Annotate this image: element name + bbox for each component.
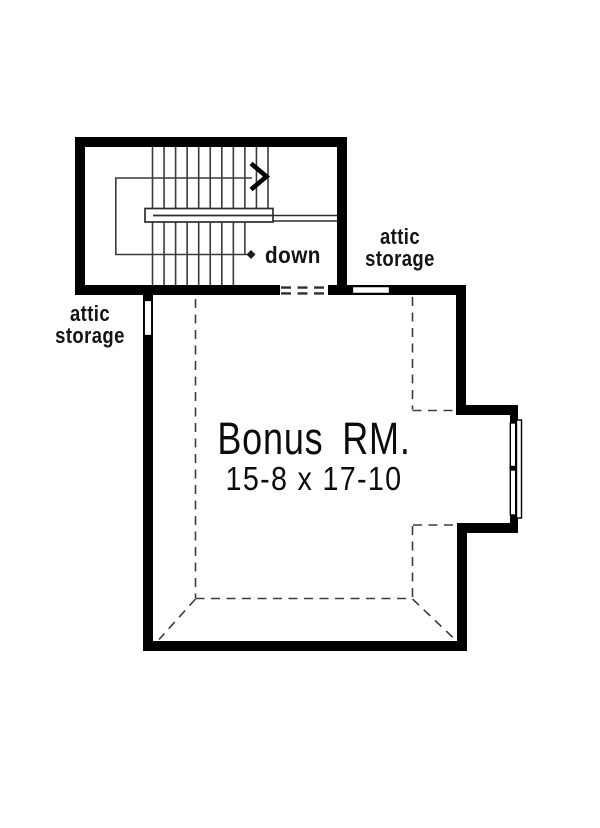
- floor-plan-canvas: attic storage attic storage down Bonus R…: [0, 0, 600, 828]
- attic-storage-right-line2: storage: [341, 248, 459, 270]
- window-sash-bottom: [510, 470, 515, 515]
- wall-bump-bottom: [457, 523, 518, 533]
- stair-treads-lower-flight: [153, 222, 245, 285]
- dashed-diagonal-bottom-right: [413, 599, 455, 639]
- stair-handrail-extension: [273, 216, 337, 222]
- wall-stair-right: [337, 137, 347, 295]
- window-sash-top: [510, 423, 515, 467]
- stair-direction-label: down: [265, 242, 321, 269]
- window: [510, 420, 522, 518]
- leader-diamond-marker: [247, 250, 256, 259]
- attic-storage-left-line2: storage: [31, 325, 149, 347]
- room-name-label: Bonus RM.: [154, 416, 474, 461]
- wall-stair-left: [75, 137, 85, 295]
- wall-bottom: [143, 641, 467, 651]
- stair-direction-arrow-icon: [251, 164, 267, 190]
- wall-right-upper: [456, 295, 466, 415]
- attic-access-opening-right: [353, 287, 390, 294]
- wall-bump-top: [456, 405, 518, 415]
- wall-stair-top: [75, 137, 347, 147]
- attic-storage-right-line1: attic: [341, 226, 459, 248]
- attic-storage-left-line1: attic: [31, 303, 149, 325]
- wall-stair-bottom-left-segment: [75, 285, 280, 295]
- room-dimensions-label: 15-8 x 17-10: [140, 462, 488, 495]
- window-outer-frame: [517, 420, 522, 518]
- dashed-diagonal-bottom-left: [159, 599, 196, 640]
- window-mullion: [510, 467, 517, 471]
- stair-wall-dashed-opening: [281, 288, 327, 294]
- wall-right-lower: [457, 533, 467, 651]
- attic-storage-label-left: attic storage: [31, 303, 149, 347]
- wall-stair-bottom-right-segment: [328, 285, 347, 295]
- attic-storage-label-right: attic storage: [341, 226, 459, 270]
